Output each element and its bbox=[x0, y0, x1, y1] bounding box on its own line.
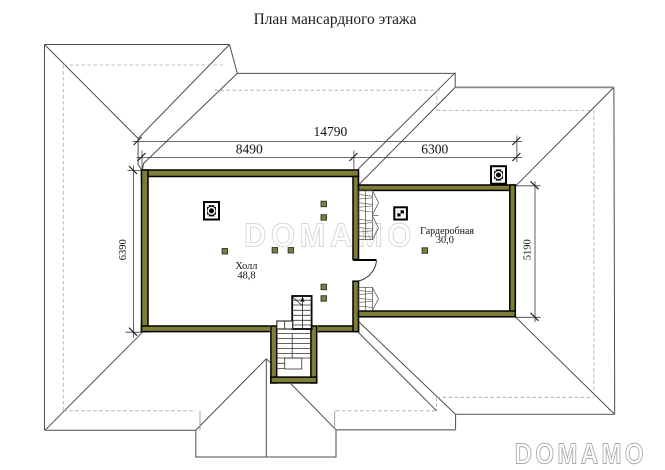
svg-text:DOMAMO: DOMAMO bbox=[244, 216, 416, 253]
svg-text:6300: 6300 bbox=[421, 141, 448, 156]
svg-text:План мансардного этажа: План мансардного этажа bbox=[254, 11, 417, 28]
svg-text:8490: 8490 bbox=[236, 141, 263, 156]
svg-text:5190: 5190 bbox=[522, 239, 533, 260]
svg-text:48,8: 48,8 bbox=[237, 270, 255, 281]
svg-text:30,0: 30,0 bbox=[436, 235, 454, 246]
svg-text:6390: 6390 bbox=[118, 239, 129, 260]
svg-text:14790: 14790 bbox=[314, 124, 348, 139]
svg-text:DOMAMO: DOMAMO bbox=[515, 439, 647, 470]
